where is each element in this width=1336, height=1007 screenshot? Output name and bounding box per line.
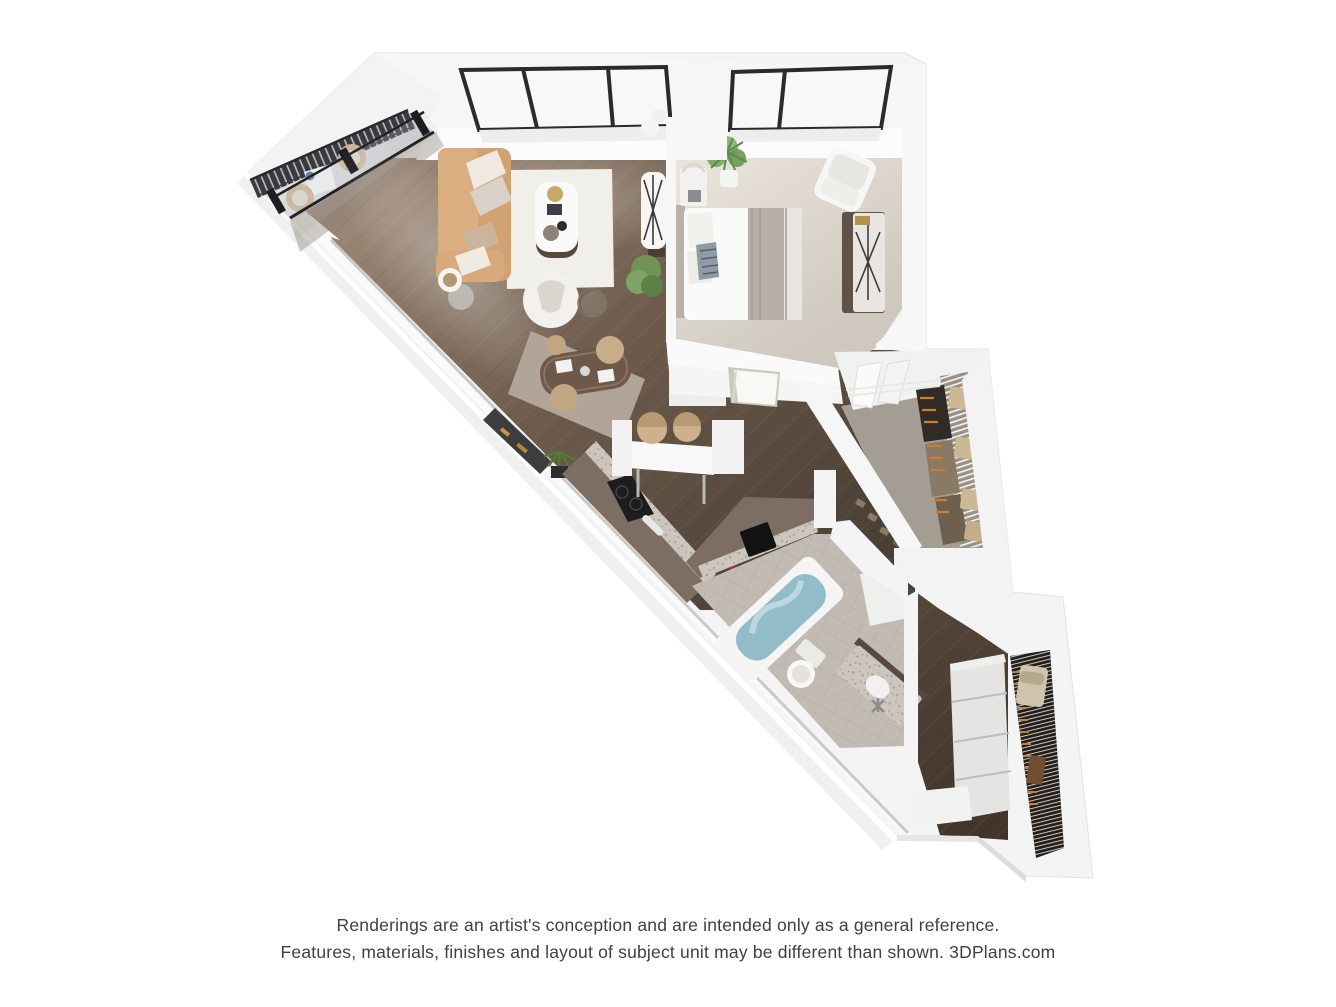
- svg-text:Renderings are an artist's con: Renderings are an artist's conception an…: [337, 915, 1000, 935]
- svg-text:Features, materials, finishes: Features, materials, finishes and layout…: [281, 942, 1056, 962]
